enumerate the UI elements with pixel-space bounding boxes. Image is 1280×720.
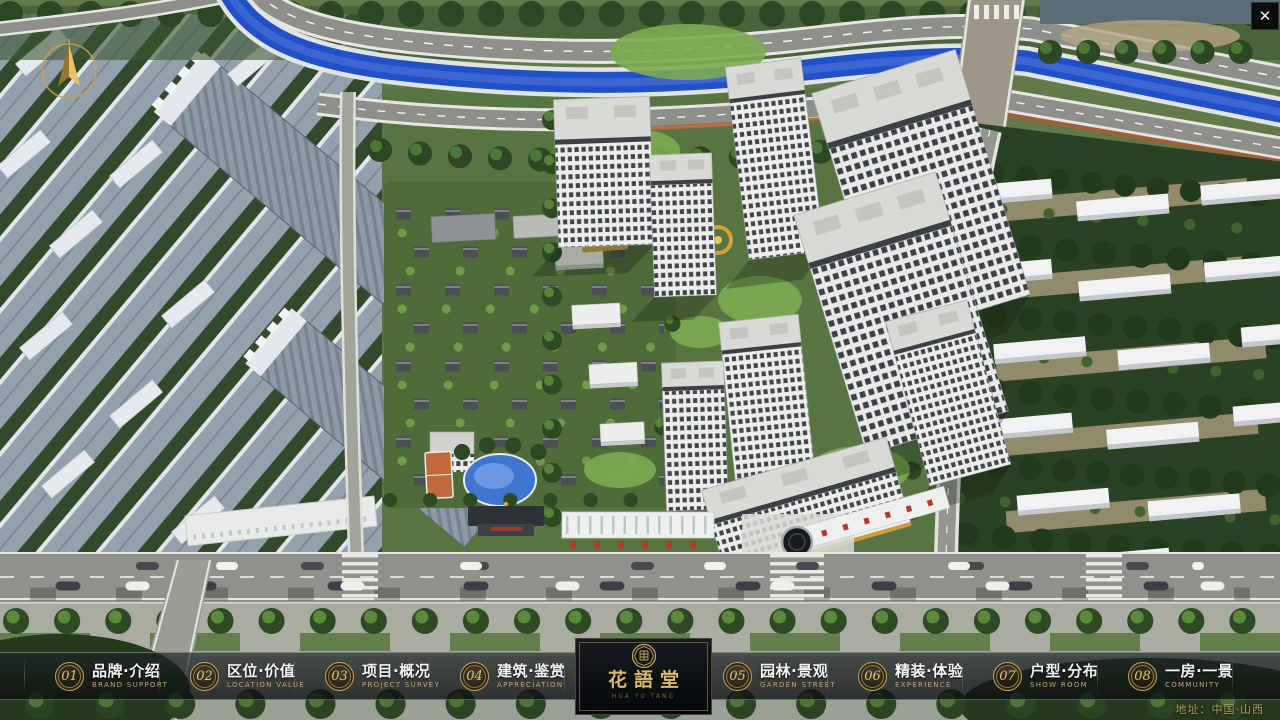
masterplan-render xyxy=(0,0,1280,720)
address-label: 地址：中国·山西 xyxy=(1176,701,1265,717)
compass-icon xyxy=(34,36,104,106)
nav-item-number-badge: 03 xyxy=(325,662,354,691)
nav-item-location-value[interactable]: 02 区位·价值LOCATION VALUE xyxy=(190,653,305,699)
nav-item-project-overview[interactable]: 03 项目·概况PROJECT SURVEY xyxy=(325,653,440,699)
nav-item-number-badge: 06 xyxy=(858,662,887,691)
nav-item-landscape[interactable]: 05 园林·景观GARDEN STREET xyxy=(723,653,836,699)
nav-item-number: 01 xyxy=(61,670,78,683)
nav-item-number: 04 xyxy=(466,670,483,683)
logo-title: 花語堂 xyxy=(601,670,686,692)
nav-item-number-badge: 07 xyxy=(993,662,1022,691)
nav-item-label-en: GARDEN STREET xyxy=(760,681,836,689)
close-icon: ✕ xyxy=(1259,9,1272,24)
nav-item-label-en: EXPERIENCE xyxy=(895,681,963,689)
nav-item-label-en: LOCATION VALUE xyxy=(227,681,305,689)
nav-item-number-badge: 08 xyxy=(1128,662,1157,691)
nav-item-label-zh: 项目·概况 xyxy=(362,663,440,680)
nav-item-label-en: COMMUNITY xyxy=(1165,681,1233,689)
nav-separator xyxy=(24,658,25,694)
nav-item-label-zh: 品牌·介绍 xyxy=(92,663,168,680)
nav-item-brand-intro[interactable]: 01 品牌·介绍BRAND SUPPORT xyxy=(55,653,168,699)
nav-item-label-en: BRAND SUPPORT xyxy=(92,681,168,689)
nav-item-number-badge: 04 xyxy=(460,662,489,691)
nav-item-label-en: PROJECT SURVEY xyxy=(362,681,440,689)
nav-item-number: 06 xyxy=(864,670,881,683)
presentation-window: ✕ 01 品牌·介绍BRAND SUPPORT 02 区位·价值LOCATION… xyxy=(0,0,1280,720)
seal-emblem-icon xyxy=(631,643,657,669)
nav-item-number-badge: 05 xyxy=(723,662,752,691)
nav-item-label-zh: 区位·价值 xyxy=(227,663,305,680)
nav-item-label-zh: 建筑·鉴赏 xyxy=(497,663,565,680)
nav-item-unit-layout[interactable]: 07 户型·分布SHOW ROOM xyxy=(993,653,1098,699)
project-logo[interactable]: 花語堂 HUA YU TANG xyxy=(575,638,712,715)
nav-item-label-zh: 户型·分布 xyxy=(1030,663,1098,680)
logo-tagline: HUA YU TANG xyxy=(612,693,675,700)
nav-item-interior-experience[interactable]: 06 精装·体验EXPERIENCE xyxy=(858,653,963,699)
nav-item-label-en: SHOW ROOM xyxy=(1030,681,1098,689)
nav-item-number-badge: 01 xyxy=(55,662,84,691)
nav-item-number: 05 xyxy=(729,670,746,683)
nav-item-label-zh: 园林·景观 xyxy=(760,663,836,680)
close-button[interactable]: ✕ xyxy=(1251,2,1279,30)
nav-item-number: 08 xyxy=(1134,670,1151,683)
nav-item-number: 07 xyxy=(999,670,1016,683)
nav-item-label-zh: 精装·体验 xyxy=(895,663,963,680)
nav-item-label-zh: 一房·一景 xyxy=(1165,663,1233,680)
sports-court xyxy=(425,451,453,498)
nav-item-label-en: APPRECIATION xyxy=(497,681,565,689)
nav-item-number: 02 xyxy=(196,670,213,683)
nav-item-architecture[interactable]: 04 建筑·鉴赏APPRECIATION xyxy=(460,653,565,699)
nav-item-number-badge: 02 xyxy=(190,662,219,691)
nav-item-room-view[interactable]: 08 一房·一景COMMUNITY xyxy=(1128,653,1233,699)
nav-item-number: 03 xyxy=(331,670,348,683)
